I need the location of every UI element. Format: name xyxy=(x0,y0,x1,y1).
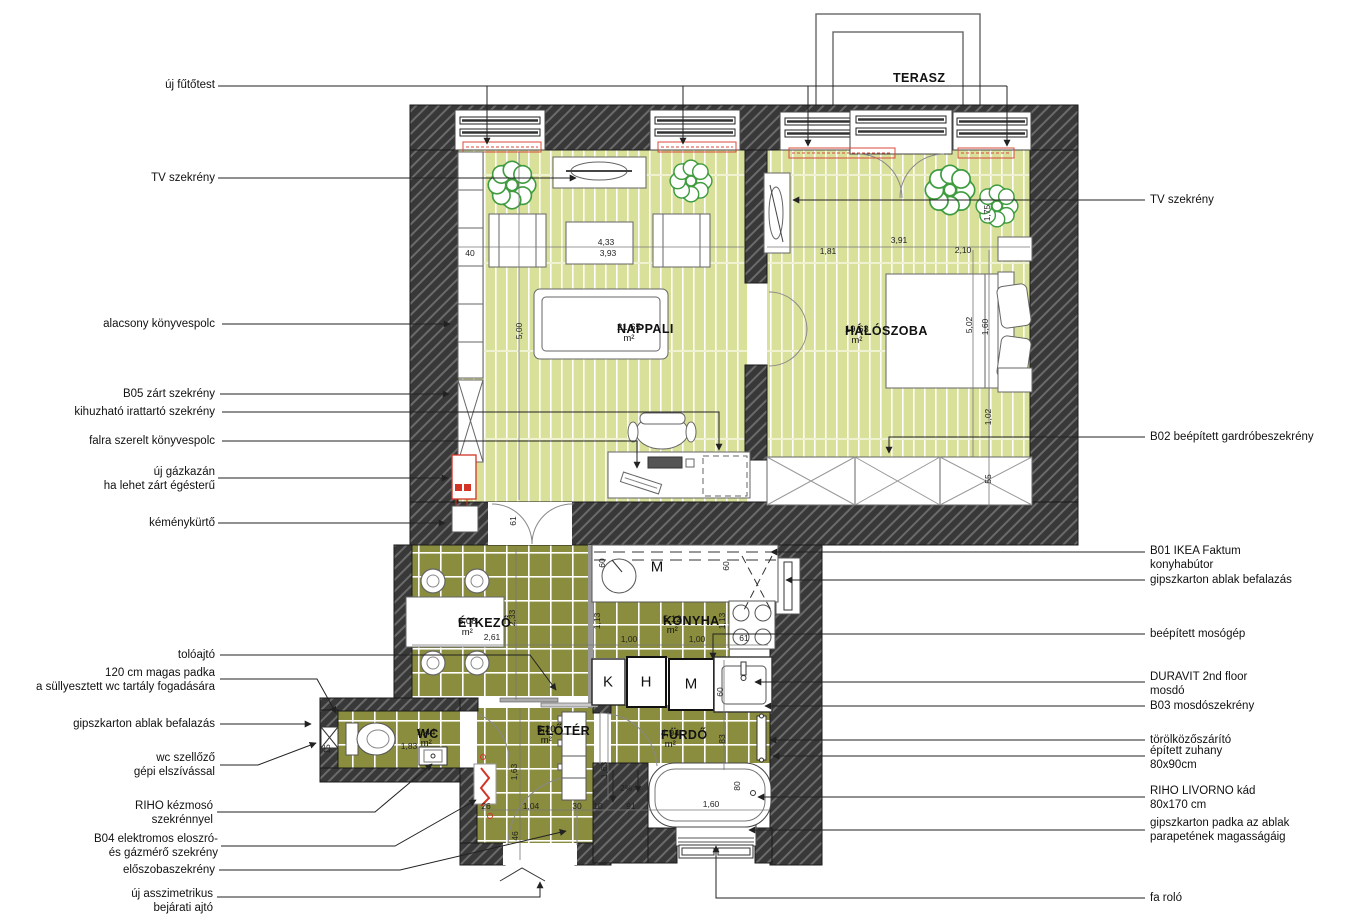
bathtub xyxy=(649,763,771,827)
plant xyxy=(925,165,974,214)
floorplan-canvas: új fűtőtestTV szekrényalacsony könyvespo… xyxy=(0,0,1370,921)
washbasin-duravit xyxy=(714,657,772,712)
floorplan-drawing xyxy=(0,0,1370,921)
appliance-row xyxy=(592,657,772,712)
wardrobe-b02 xyxy=(767,457,1032,505)
sofa xyxy=(534,289,668,359)
cabinet-b05 xyxy=(458,380,483,462)
tv-cabinet-nappali xyxy=(553,157,646,188)
chimney-box xyxy=(452,506,478,532)
kitchen-sink xyxy=(602,559,636,593)
nightstand-top xyxy=(998,237,1032,261)
hand-basin-riho xyxy=(419,747,447,765)
plant xyxy=(670,160,712,202)
dining-table xyxy=(406,597,504,647)
nightstand-bottom xyxy=(998,368,1032,392)
plant xyxy=(976,185,1018,227)
doorway-nappali-eloter xyxy=(488,502,572,545)
armchair-left xyxy=(489,214,546,267)
stove xyxy=(729,601,775,649)
walled-in-window-kitchen xyxy=(776,558,800,614)
terrace-outline xyxy=(816,14,980,107)
window-nappali-2 xyxy=(650,110,740,150)
window-nappali-1 xyxy=(455,110,545,150)
hall-cabinet xyxy=(558,712,586,800)
coffee-table xyxy=(566,222,633,264)
appliance-h xyxy=(627,657,666,707)
toilet xyxy=(346,723,395,755)
appliance-k xyxy=(592,659,625,705)
tv-cabinet-haloszoba xyxy=(764,173,790,253)
bookshelf-low xyxy=(458,152,483,378)
towel-dryer xyxy=(757,714,766,762)
window-haloszoba-2 xyxy=(953,112,1031,150)
desk xyxy=(608,452,750,498)
window-wc-walled xyxy=(321,727,338,748)
sliding-door xyxy=(500,698,598,707)
plant xyxy=(488,161,536,209)
armchair-right xyxy=(653,214,710,267)
washing-machine xyxy=(669,659,714,710)
